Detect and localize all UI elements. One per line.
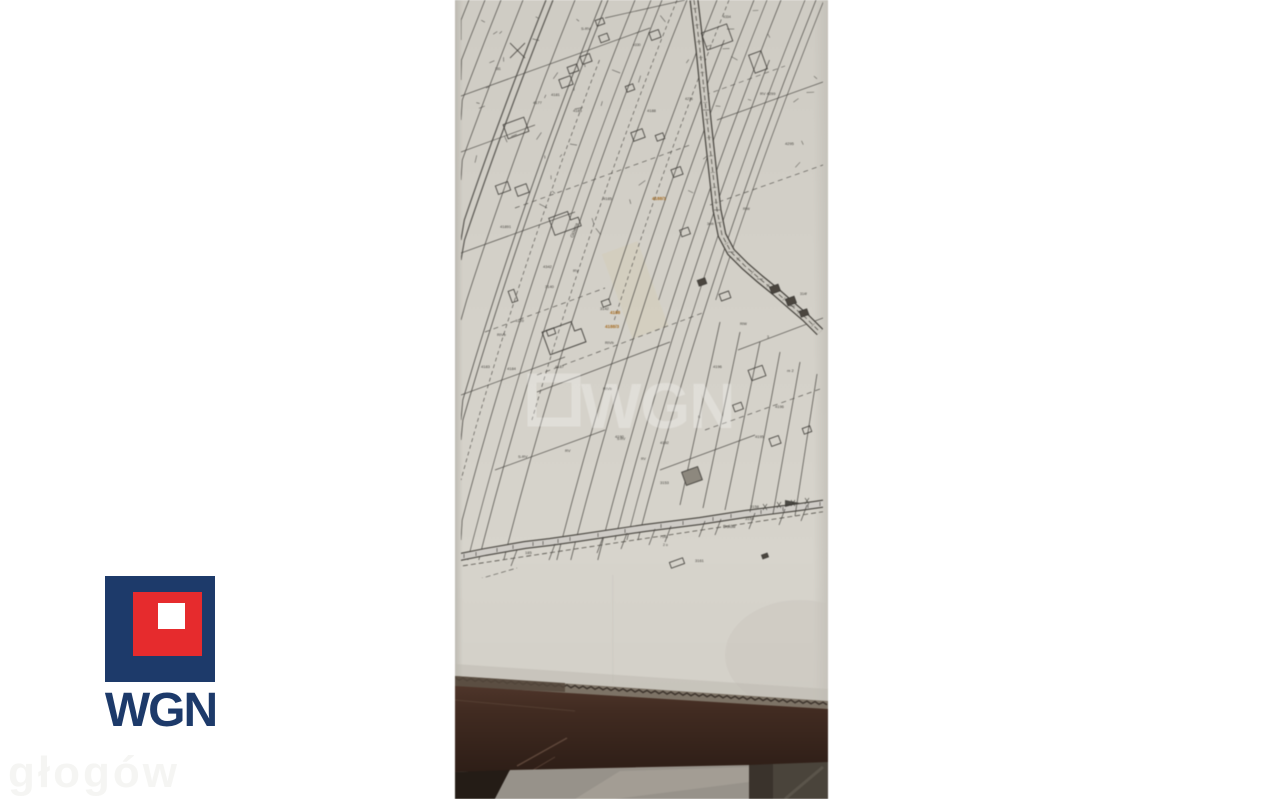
svg-text:4177: 4177 xyxy=(533,100,543,105)
svg-text:x330: x330 xyxy=(633,43,641,47)
svg-text:Dułów: Dułów xyxy=(723,524,736,529)
svg-text:RV 4299: RV 4299 xyxy=(760,91,776,96)
svg-text:41891: 41891 xyxy=(500,224,512,229)
svg-text:4334: 4334 xyxy=(723,15,731,19)
svg-text:4181: 4181 xyxy=(551,92,561,97)
svg-text:3140: 3140 xyxy=(545,284,555,289)
svg-text:RIVb: RIVb xyxy=(605,340,615,345)
svg-text:4195: 4195 xyxy=(755,434,765,439)
svg-text:3158: 3158 xyxy=(750,504,760,509)
svg-text:314f: 314f xyxy=(800,292,807,296)
svg-text:4196: 4196 xyxy=(713,364,723,369)
svg-text:4185: 4185 xyxy=(603,196,613,201)
svg-text:4187: 4187 xyxy=(555,364,565,369)
svg-text:RV: RV xyxy=(641,457,646,461)
svg-text:3: 3 xyxy=(767,335,769,339)
svg-text:2 o: 2 o xyxy=(663,543,668,547)
svg-text:S-RV: S-RV xyxy=(581,26,591,31)
svg-text:4188/1: 4188/1 xyxy=(652,196,666,201)
svg-text:3142: 3142 xyxy=(600,306,610,311)
svg-text:4183: 4183 xyxy=(481,364,491,369)
svg-text:4188/3: 4188/3 xyxy=(605,324,619,329)
svg-text:S-RV: S-RV xyxy=(518,454,528,459)
svg-text:3159: 3159 xyxy=(745,516,755,521)
svg-text:m 2: m 2 xyxy=(787,368,794,373)
svg-text:4295: 4295 xyxy=(785,141,795,146)
svg-text:4342: 4342 xyxy=(543,264,553,269)
svg-text:4276: 4276 xyxy=(685,97,693,101)
svg-text:RIW: RIW xyxy=(743,207,751,211)
svg-text:4188: 4188 xyxy=(610,310,621,315)
svg-text:RIW: RIW xyxy=(740,322,748,326)
svg-text:RIVb: RIVb xyxy=(497,332,507,337)
svg-text:7143: 7143 xyxy=(660,535,668,539)
svg-text:181: 181 xyxy=(495,67,501,71)
svg-text:3mh: 3mh xyxy=(707,222,714,226)
svg-text:WGN: WGN xyxy=(581,370,734,442)
svg-text:3161: 3161 xyxy=(695,558,705,563)
svg-text:4120: 4120 xyxy=(515,318,525,323)
svg-text:3153: 3153 xyxy=(660,480,670,485)
svg-text:4196: 4196 xyxy=(775,404,785,409)
svg-text:4188: 4188 xyxy=(647,108,657,113)
svg-text:4185: 4185 xyxy=(573,108,583,113)
svg-text:185: 185 xyxy=(525,550,532,555)
svg-text:RV: RV xyxy=(565,448,571,453)
svg-text:4184: 4184 xyxy=(507,366,517,371)
svg-text:RV: RV xyxy=(573,268,579,273)
